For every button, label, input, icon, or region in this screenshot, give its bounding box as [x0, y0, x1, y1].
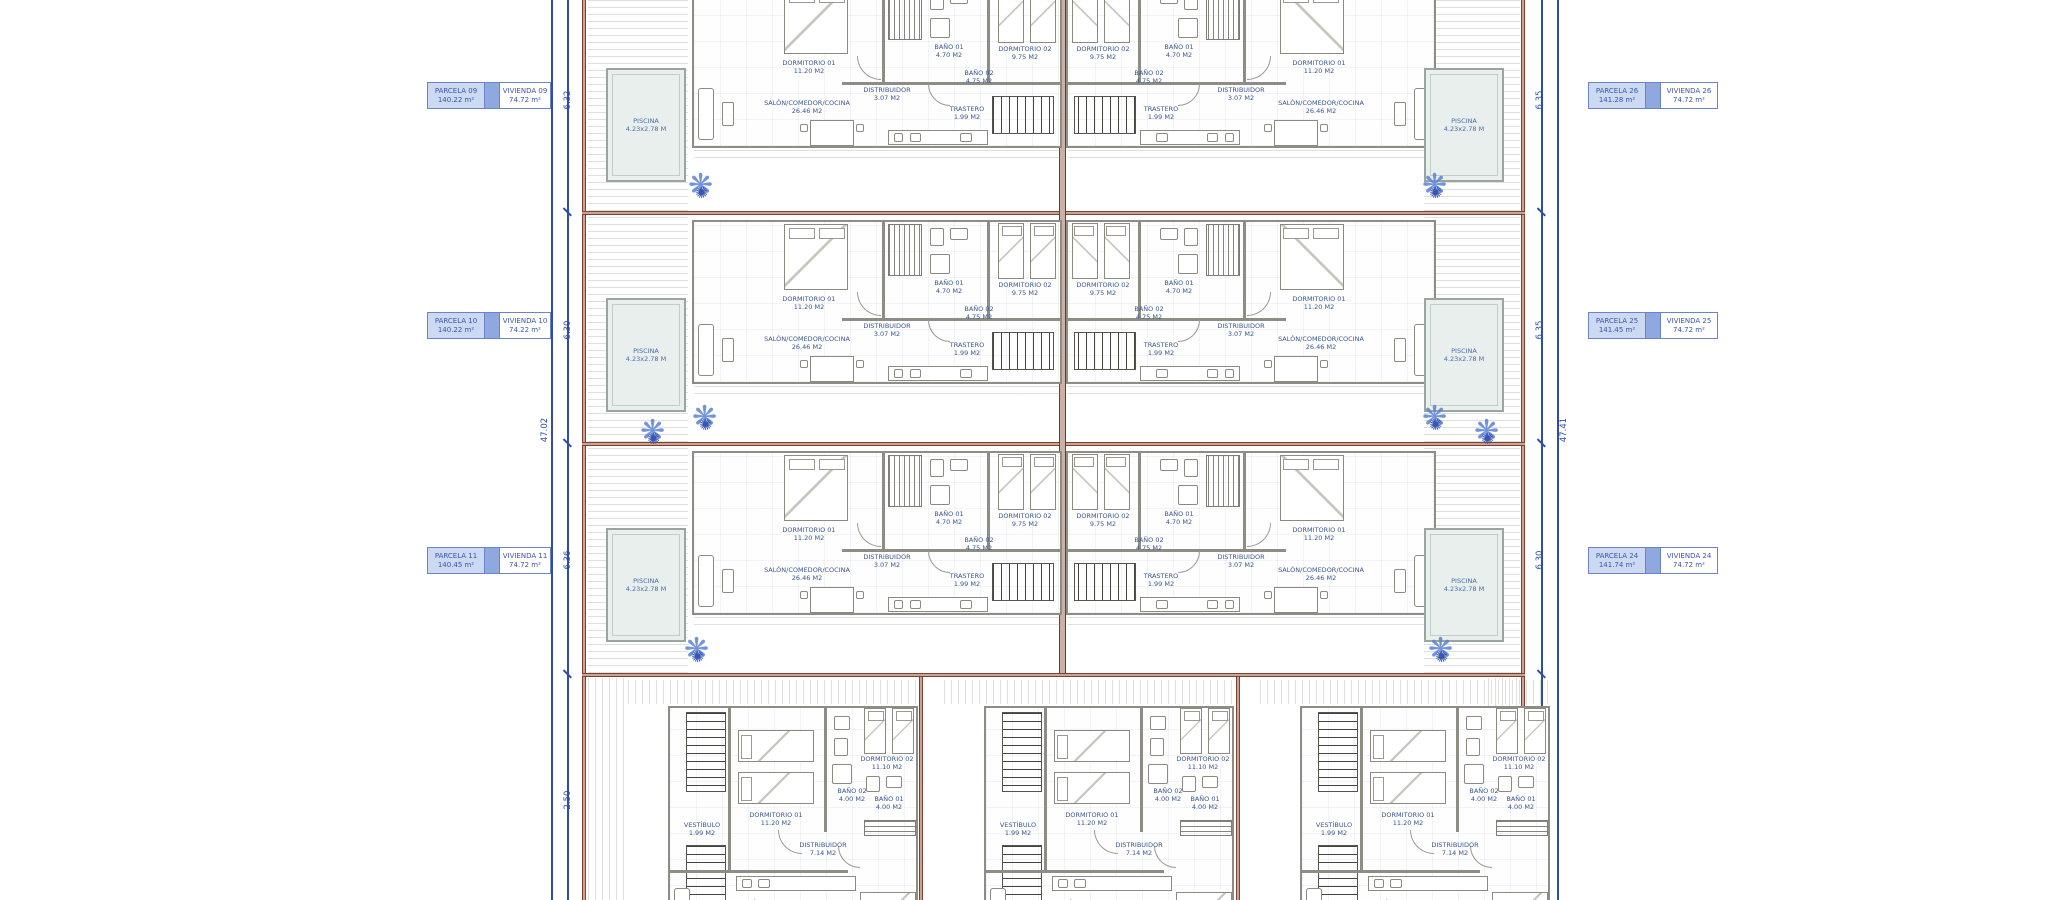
parcela-cell: PARCELA 26141.28 m² — [1588, 82, 1646, 109]
terrace-deck-bottom-left — [588, 678, 626, 900]
pillow-icon — [789, 459, 815, 470]
oven-icon — [1156, 369, 1168, 378]
stairs-icon — [1074, 332, 1136, 370]
stairs-icon — [1002, 712, 1042, 792]
interior-wall — [1456, 708, 1459, 832]
vivienda-cell: VIVIENDA 2474.72 m² — [1660, 547, 1718, 574]
room-label-trastero: TRASTERO1.99 M2 — [944, 106, 990, 121]
room-label-dormitorio2: DORMITORIO 029.75 M2 — [1070, 282, 1136, 297]
sink-icon — [1150, 716, 1166, 730]
pillow-icon — [819, 228, 845, 239]
vivienda-cell: VIVIENDA 0974.72 m² — [499, 82, 551, 109]
room-label-dormitorio2: DORMITORIO 029.75 M2 — [992, 46, 1058, 61]
pillow-icon — [1313, 0, 1339, 3]
sink-icon — [950, 228, 968, 240]
interior-wall — [1044, 708, 1047, 870]
villa-unit: DORMITORIO 0111.20 M2 BAÑO 014.70 M2 BAÑ… — [1066, 451, 1436, 629]
toilet-icon — [930, 0, 944, 10]
sink-icon — [834, 716, 850, 730]
sofa-icon — [674, 888, 690, 900]
twin-bed-icon — [1030, 0, 1056, 43]
room-label-bano1: BAÑO 014.00 M2 — [1178, 796, 1232, 811]
villa-unit: DORMITORIO 0111.20 M2 BAÑO 014.70 M2 BAÑ… — [692, 451, 1062, 629]
plot-divider — [582, 211, 1525, 215]
room-label-dormitorio1: DORMITORIO 0111.20 M2 — [1264, 527, 1374, 542]
room-label-distribuidor: DISTRIBUIDOR7.14 M2 — [778, 842, 868, 857]
kitchen-sink-icon — [758, 879, 770, 888]
chair-icon — [1320, 591, 1328, 599]
shower-icon — [930, 254, 950, 274]
dimension-value: 2.50 — [563, 791, 573, 810]
interior-wall — [1360, 708, 1363, 870]
hob-icon — [894, 600, 903, 609]
room-label-bano2: BAÑO 024.75 M2 — [944, 70, 1014, 85]
room-label-dormitorio2: DORMITORIO 0211.10 M2 — [1490, 756, 1548, 771]
kitchen-counter-icon — [888, 130, 988, 145]
twin-bed-icon — [738, 730, 814, 762]
kitchen-sink-icon — [1207, 133, 1218, 142]
chair-icon — [1320, 124, 1328, 132]
closet-icon — [1496, 820, 1548, 836]
palm-tree-icon: ❋✺ — [692, 418, 717, 422]
interior-wall — [882, 222, 885, 318]
dining-table-icon — [1274, 587, 1318, 613]
sink-icon — [950, 459, 968, 471]
room-label-trastero: TRASTERO1.99 M2 — [1138, 573, 1184, 588]
room-label-bano2: BAÑO 024.75 M2 — [1114, 70, 1184, 85]
chair-icon — [856, 124, 864, 132]
dimension-value: 6.30 — [563, 321, 573, 340]
villa-unit-bottom: VESTÍBULO1.99 M2 DORMITORIO 0111.20 M2 B… — [1260, 680, 1550, 900]
label-connector — [485, 82, 499, 109]
twin-bed-icon — [1072, 0, 1098, 43]
kitchen-counter-icon — [1052, 876, 1172, 891]
dining-table-icon — [810, 356, 854, 382]
room-label-bano2: BAÑO 024.75 M2 — [1114, 537, 1184, 552]
terrace-deck — [1068, 150, 1434, 162]
floor-plan-canvas: PISCINA4.23x2.78 M PISCINA4.23x2.78 M PI… — [0, 0, 2048, 900]
chair-icon — [1264, 591, 1272, 599]
double-bed-icon — [860, 892, 916, 900]
twin-bed-icon — [864, 708, 886, 754]
twin-bed-icon — [1054, 772, 1130, 804]
dimension-total-value: 47.41 — [1559, 418, 1569, 442]
parcel-label: PARCELA 11140.45 m² VIVIENDA 1174.72 m² — [427, 547, 551, 574]
closet-icon — [888, 0, 922, 40]
double-bed-icon — [784, 224, 848, 290]
pillow-icon — [1500, 711, 1516, 721]
interior-wall — [668, 870, 848, 873]
kitchen-sink-icon — [1207, 369, 1218, 378]
room-label-bano2: BAÑO 024.75 M2 — [944, 306, 1014, 321]
hob-icon — [1225, 133, 1234, 142]
pillow-icon — [1074, 226, 1094, 236]
sofa-icon — [1306, 888, 1322, 900]
shower-icon — [1464, 764, 1484, 784]
chair-icon — [856, 591, 864, 599]
pillow-icon — [1313, 459, 1339, 470]
sofa-icon — [698, 324, 714, 376]
parcel-label: PARCELA 25141.45 m² VIVIENDA 2574.72 m² — [1588, 312, 1718, 339]
interior-wall — [1138, 222, 1141, 318]
kitchen-sink-icon — [1390, 879, 1402, 888]
parcel-label: PARCELA 10140.22 m² VIVIENDA 1074.22 m² — [427, 312, 551, 339]
stairs-icon — [1074, 563, 1136, 601]
room-label-bano1: BAÑO 014.70 M2 — [1144, 44, 1214, 59]
twin-bed-icon — [998, 0, 1024, 43]
twin-bed-icon — [1208, 708, 1230, 754]
vivienda-cell: VIVIENDA 2574.72 m² — [1660, 312, 1718, 339]
pillow-icon — [1034, 457, 1054, 467]
stairs-icon — [1074, 96, 1136, 134]
coffee-table-icon — [722, 338, 734, 362]
pool-label: PISCINA — [1451, 577, 1477, 585]
parcela-cell: PARCELA 24141.74 m² — [1588, 547, 1646, 574]
pillow-icon — [819, 0, 845, 3]
room-label-vestibulo: VESTÍBULO1.99 M2 — [988, 822, 1048, 837]
pillow-icon — [819, 459, 845, 470]
twin-bed-icon — [1524, 708, 1546, 754]
dining-table-icon — [1274, 120, 1318, 146]
closet-icon — [1180, 820, 1232, 836]
interior-wall — [882, 0, 885, 82]
dimension-line-total-left — [551, 0, 553, 900]
palm-tree-icon: ❋✺ — [688, 186, 713, 190]
pool: PISCINA4.23x2.78 M — [1424, 298, 1504, 412]
vivienda-cell: VIVIENDA 1174.72 m² — [499, 547, 551, 574]
toilet-icon — [1184, 0, 1198, 10]
coffee-table-icon — [722, 102, 734, 126]
room-label-salon: SALÓN/COMEDOR/COCINA26.46 M2 — [742, 567, 872, 582]
double-bed-icon — [1280, 455, 1344, 521]
dining-table-icon — [810, 587, 854, 613]
interior-wall — [1243, 0, 1246, 82]
shower-icon — [832, 764, 852, 784]
chair-icon — [1264, 360, 1272, 368]
twin-bed-icon — [1104, 0, 1130, 43]
room-label-trastero: TRASTERO1.99 M2 — [944, 342, 990, 357]
room-label-bano1: BAÑO 014.70 M2 — [1144, 280, 1214, 295]
pillow-icon — [1002, 457, 1022, 467]
twin-bed-icon — [1370, 772, 1446, 804]
hob-icon — [894, 369, 903, 378]
pool: PISCINA4.23x2.78 M — [1424, 528, 1504, 642]
kitchen-sink-icon — [1207, 600, 1218, 609]
shower-icon — [930, 485, 950, 505]
terrace-deck — [1068, 617, 1434, 629]
shower-icon — [1148, 764, 1168, 784]
pool-label: PISCINA — [633, 577, 659, 585]
room-label-bano2: BAÑO 024.75 M2 — [1114, 306, 1184, 321]
kitchen-counter-icon — [736, 876, 856, 891]
room-label-dormitorio2: DORMITORIO 029.75 M2 — [1070, 513, 1136, 528]
room-label-bano1: BAÑO 014.70 M2 — [914, 280, 984, 295]
interior-wall — [824, 708, 827, 832]
pool-label: PISCINA — [633, 347, 659, 355]
palm-tree-icon: ❋✺ — [1428, 650, 1453, 654]
double-bed-icon — [1280, 0, 1344, 54]
chair-icon — [800, 360, 808, 368]
sofa-icon — [990, 888, 1006, 900]
hob-icon — [1058, 879, 1068, 888]
room-label-vestibulo: VESTÍBULO1.99 M2 — [672, 822, 732, 837]
palm-tree-icon: ❋✺ — [1474, 432, 1499, 436]
terrace-deck — [694, 617, 1060, 629]
room-label-bano2: BAÑO 024.75 M2 — [944, 537, 1014, 552]
twin-bed-icon — [1030, 454, 1056, 510]
pillow-icon — [1184, 711, 1200, 721]
chair-icon — [1264, 124, 1272, 132]
label-connector — [485, 312, 499, 339]
terrace-deck — [628, 680, 918, 704]
label-connector — [485, 547, 499, 574]
toilet-icon — [930, 228, 944, 246]
sink-icon — [1466, 716, 1482, 730]
palm-tree-icon: ❋✺ — [1422, 418, 1447, 422]
pillow-icon — [789, 0, 815, 3]
room-label-salon: SALÓN/COMEDOR/COCINA26.46 M2 — [1256, 100, 1386, 115]
palm-tree-icon: ❋✺ — [1422, 186, 1447, 190]
pillow-icon — [1034, 226, 1054, 236]
room-label-dormitorio2: DORMITORIO 0211.10 M2 — [1174, 756, 1232, 771]
pillow-icon — [1283, 228, 1309, 239]
double-bed-icon — [784, 455, 848, 521]
closet-icon — [1206, 224, 1240, 276]
coffee-table-icon — [1394, 338, 1406, 362]
room-label-dormitorio1: DORMITORIO 0111.20 M2 — [754, 60, 864, 75]
closet-icon — [1206, 455, 1240, 507]
interior-wall — [1300, 870, 1480, 873]
pillow-icon — [1074, 457, 1094, 467]
twin-bed-icon — [738, 772, 814, 804]
villa-unit: DORMITORIO 0111.20 M2 BAÑO 014.70 M2 BAÑ… — [692, 220, 1062, 398]
stairs-icon — [686, 712, 726, 792]
pillow-icon — [868, 711, 884, 721]
oven-icon — [960, 133, 972, 142]
shower-icon — [1178, 485, 1198, 505]
pillow-icon — [741, 735, 752, 759]
pillow-icon — [789, 228, 815, 239]
twin-bed-icon — [1370, 730, 1446, 762]
stairs-icon — [992, 332, 1054, 370]
coffee-table-icon — [1394, 102, 1406, 126]
hob-icon — [1225, 600, 1234, 609]
plot-divider-bottom — [1236, 677, 1240, 900]
chair-icon — [1320, 360, 1328, 368]
interior-wall — [1140, 708, 1143, 832]
kitchen-counter-icon — [888, 597, 988, 612]
interior-wall — [882, 453, 885, 549]
double-bed-icon — [1492, 892, 1548, 900]
oven-icon — [960, 369, 972, 378]
villa-unit-bottom: VESTÍBULO1.99 M2 DORMITORIO 0111.20 M2 B… — [944, 680, 1234, 900]
twin-bed-icon — [1104, 223, 1130, 279]
sofa-icon — [698, 88, 714, 140]
room-label-salon: SALÓN/COMEDOR/COCINA26.46 M2 — [1256, 567, 1386, 582]
pool: PISCINA4.23x2.78 M — [606, 528, 686, 642]
sink-icon — [886, 776, 902, 788]
room-label-dormitorio2: DORMITORIO 029.75 M2 — [992, 513, 1058, 528]
room-label-dormitorio1: DORMITORIO 0111.20 M2 — [1264, 296, 1374, 311]
room-label-salon: SALÓN/COMEDOR/COCINA26.46 M2 — [742, 336, 872, 351]
double-bed-icon — [784, 0, 848, 54]
pillow-icon — [1283, 0, 1309, 3]
kitchen-sink-icon — [910, 600, 921, 609]
villa-unit-bottom: VESTÍBULO1.99 M2 DORMITORIO 0111.20 M2 B… — [628, 680, 918, 900]
pillow-icon — [1212, 711, 1228, 721]
room-label-trastero: TRASTERO1.99 M2 — [1138, 106, 1184, 121]
interior-wall — [984, 870, 1164, 873]
site-boundary-left — [582, 0, 586, 900]
villa-unit: DORMITORIO 0111.20 M2 BAÑO 014.70 M2 BAÑ… — [1066, 0, 1436, 162]
dimension-line-total-right — [1557, 0, 1559, 900]
room-label-salon: SALÓN/COMEDOR/COCINA26.46 M2 — [1256, 336, 1386, 351]
room-label-dormitorio1: DORMITORIO 0111.20 M2 — [1046, 812, 1138, 827]
room-label-salon: SALÓN/COMEDOR/COCINA26.46 M2 — [742, 100, 872, 115]
twin-bed-icon — [998, 454, 1024, 510]
pool: PISCINA4.23x2.78 M — [606, 298, 686, 412]
oven-icon — [1156, 133, 1168, 142]
interior-wall — [987, 453, 990, 549]
dimension-value: 6.35 — [1535, 91, 1545, 110]
hob-icon — [742, 879, 752, 888]
toilet-icon — [1150, 738, 1164, 756]
parcela-cell: PARCELA 11140.45 m² — [427, 547, 485, 574]
toilet-icon — [1466, 738, 1480, 756]
parcela-cell: PARCELA 09140.22 m² — [427, 82, 485, 109]
pillow-icon — [1057, 735, 1068, 759]
coffee-table-icon — [722, 569, 734, 593]
interior-wall — [728, 708, 731, 870]
sink-icon — [1160, 228, 1178, 240]
pool: PISCINA4.23x2.78 M — [1424, 68, 1504, 182]
pillow-icon — [1373, 735, 1384, 759]
label-connector — [1646, 547, 1660, 574]
shower-icon — [930, 18, 950, 38]
twin-bed-icon — [1180, 708, 1202, 754]
room-label-dormitorio1: DORMITORIO 0111.20 M2 — [730, 812, 822, 827]
terrace-deck — [694, 386, 1060, 398]
room-label-dormitorio1: DORMITORIO 0111.20 M2 — [1362, 812, 1454, 827]
pillow-icon — [741, 777, 752, 801]
shower-icon — [1178, 254, 1198, 274]
twin-bed-icon — [1072, 223, 1098, 279]
twin-bed-icon — [1104, 454, 1130, 510]
label-connector — [1646, 82, 1660, 109]
palm-tree-icon: ❋✺ — [684, 650, 709, 654]
kitchen-counter-icon — [888, 366, 988, 381]
plot-divider — [582, 442, 1525, 446]
pillow-icon — [1283, 459, 1309, 470]
pool-label: PISCINA — [1451, 117, 1477, 125]
dining-table-icon — [1274, 356, 1318, 382]
stairs-icon — [992, 563, 1054, 601]
room-label-dormitorio2: DORMITORIO 029.75 M2 — [1070, 46, 1136, 61]
room-label-dormitorio2: DORMITORIO 0211.10 M2 — [858, 756, 916, 771]
plot-divider-bottom — [919, 677, 923, 900]
dimension-line-segments-left — [567, 0, 569, 900]
plot-divider — [582, 673, 1525, 677]
toilet-icon — [1184, 459, 1198, 477]
parcela-cell: PARCELA 10140.22 m² — [427, 312, 485, 339]
pillow-icon — [1002, 226, 1022, 236]
parcel-label: PARCELA 24141.74 m² VIVIENDA 2474.72 m² — [1588, 547, 1718, 574]
stairs-icon — [992, 96, 1054, 134]
pillow-icon — [1313, 228, 1339, 239]
kitchen-sink-icon — [910, 133, 921, 142]
dimension-total-value: 47.02 — [540, 418, 550, 442]
kitchen-counter-icon — [1368, 876, 1488, 891]
pillow-icon — [1373, 777, 1384, 801]
room-label-bano1: BAÑO 014.70 M2 — [914, 44, 984, 59]
dining-table-icon — [810, 120, 854, 146]
closet-icon — [888, 455, 922, 507]
parcel-label: PARCELA 09140.22 m² VIVIENDA 0974.72 m² — [427, 82, 551, 109]
shower-icon — [1178, 18, 1198, 38]
vivienda-cell: VIVIENDA 2674.72 m² — [1660, 82, 1718, 109]
closet-icon — [1206, 0, 1240, 40]
twin-bed-icon — [892, 708, 914, 754]
double-bed-icon — [1176, 892, 1232, 900]
twin-bed-icon — [1030, 223, 1056, 279]
terrace-deck — [1068, 386, 1434, 398]
chair-icon — [800, 591, 808, 599]
room-label-bano1: BAÑO 014.00 M2 — [1494, 796, 1548, 811]
closet-icon — [864, 820, 916, 836]
parcel-label: PARCELA 26141.28 m² VIVIENDA 2674.72 m² — [1588, 82, 1718, 109]
vivienda-cell: VIVIENDA 1074.22 m² — [499, 312, 551, 339]
oven-icon — [960, 600, 972, 609]
room-label-dormitorio2: DORMITORIO 029.75 M2 — [992, 282, 1058, 297]
oven-icon — [1156, 600, 1168, 609]
room-label-distribuidor: DISTRIBUIDOR7.14 M2 — [1410, 842, 1500, 857]
parcela-cell: PARCELA 25141.45 m² — [1588, 312, 1646, 339]
double-bed-icon — [1280, 224, 1344, 290]
villa-unit: DORMITORIO 0111.20 M2 BAÑO 014.70 M2 BAÑ… — [1066, 220, 1436, 398]
twin-bed-icon — [1054, 730, 1130, 762]
pillow-icon — [1106, 226, 1126, 236]
palm-tree-icon: ❋✺ — [640, 432, 665, 436]
room-label-bano1: BAÑO 014.70 M2 — [1144, 511, 1214, 526]
pillow-icon — [896, 711, 912, 721]
toilet-icon — [930, 459, 944, 477]
sink-icon — [950, 0, 968, 4]
twin-bed-icon — [1072, 454, 1098, 510]
sink-icon — [1518, 776, 1534, 788]
interior-wall — [1138, 453, 1141, 549]
chair-icon — [800, 124, 808, 132]
room-label-bano1: BAÑO 014.70 M2 — [914, 511, 984, 526]
sink-icon — [1160, 0, 1178, 4]
pillow-icon — [1057, 777, 1068, 801]
toilet-icon — [834, 738, 848, 756]
twin-bed-icon — [1496, 708, 1518, 754]
room-label-vestibulo: VESTÍBULO1.99 M2 — [1304, 822, 1364, 837]
room-label-dormitorio1: DORMITORIO 0111.20 M2 — [754, 296, 864, 311]
room-label-bano1: BAÑO 014.00 M2 — [862, 796, 916, 811]
chair-icon — [856, 360, 864, 368]
terrace-deck — [1260, 680, 1550, 704]
stairs-icon — [1318, 712, 1358, 792]
sink-icon — [1160, 459, 1178, 471]
kitchen-sink-icon — [1074, 879, 1086, 888]
interior-wall — [1243, 222, 1246, 318]
interior-wall — [987, 222, 990, 318]
room-label-dormitorio1: DORMITORIO 0111.20 M2 — [754, 527, 864, 542]
terrace-deck — [944, 680, 1234, 704]
interior-wall — [1243, 453, 1246, 549]
terrace-deck — [694, 150, 1060, 162]
